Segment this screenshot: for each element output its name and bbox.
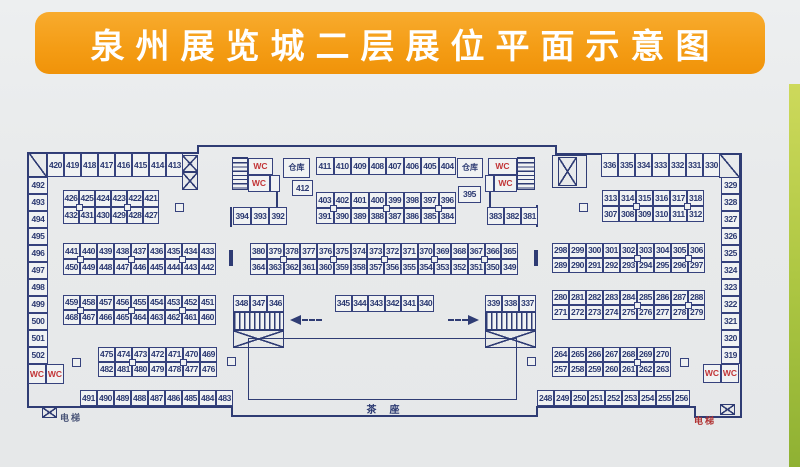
joint-pillar [179, 256, 186, 263]
booth-433: 433 [199, 243, 216, 259]
booth-326: 326 [721, 228, 740, 245]
booth-342: 342 [385, 295, 402, 312]
booth-377: 377 [300, 243, 317, 259]
wc-cell: WC [721, 364, 739, 383]
booth-337: 337 [519, 295, 536, 312]
booth-343: 343 [368, 295, 385, 312]
wall-segment [230, 207, 232, 227]
elevator-label-right: 电梯 [694, 414, 716, 427]
booth-381: 381 [521, 207, 538, 225]
shaft-x-icon [558, 157, 577, 186]
joint-pillar [383, 205, 390, 212]
booth-304: 304 [654, 243, 671, 258]
booth-460: 460 [199, 310, 216, 325]
booth-266: 266 [586, 347, 603, 362]
joint-pillar [128, 307, 135, 314]
pillar [579, 203, 588, 212]
arrow-right-dash [448, 319, 468, 321]
booth-490: 490 [97, 390, 114, 406]
booth-301: 301 [603, 243, 620, 258]
booth-489: 489 [114, 390, 131, 406]
joint-pillar [180, 359, 187, 366]
booth-401: 401 [351, 192, 369, 208]
booth-439: 439 [97, 243, 114, 259]
booth-409: 409 [351, 157, 369, 175]
booth-410: 410 [334, 157, 352, 175]
booth-346: 346 [267, 295, 284, 312]
booth-364: 364 [250, 259, 267, 275]
booth-339: 339 [485, 295, 502, 312]
booth-347: 347 [250, 295, 267, 312]
door-cell [485, 175, 494, 192]
booth-289: 289 [552, 258, 569, 273]
booth-329: 329 [721, 177, 740, 194]
booth-408: 408 [369, 157, 387, 175]
booth-488: 488 [131, 390, 148, 406]
booth-291: 291 [586, 258, 603, 273]
wc-cell: WC [248, 158, 273, 175]
stairs-icon [232, 157, 248, 190]
booth-258: 258 [569, 362, 586, 377]
booth-415: 415 [132, 153, 149, 177]
booth-282: 282 [586, 290, 603, 305]
booth-405: 405 [421, 157, 439, 175]
booth-492: 492 [28, 177, 48, 194]
booth-494: 494 [28, 211, 48, 228]
booth-267: 267 [603, 347, 620, 362]
booth-260: 260 [603, 362, 620, 377]
pillar [680, 358, 689, 367]
booth-486: 486 [165, 390, 182, 406]
booth-368: 368 [451, 243, 468, 259]
pillar [527, 357, 536, 366]
joint-pillar [128, 256, 135, 263]
booth-292: 292 [603, 258, 620, 273]
joint-pillar [431, 256, 438, 263]
tea-area [248, 338, 517, 400]
booth-420: 420 [47, 153, 64, 177]
booth-502: 502 [28, 347, 48, 364]
booth-277: 277 [654, 305, 671, 320]
booth-380: 380 [250, 243, 267, 259]
elevator-icon [42, 407, 57, 418]
booth-382: 382 [504, 207, 521, 225]
booth-448: 448 [97, 259, 114, 275]
booth-251: 251 [588, 390, 605, 406]
joint-pillar [381, 256, 388, 263]
booth-341: 341 [401, 295, 418, 312]
wall-segment [489, 192, 491, 208]
wc-cell: WC [248, 175, 270, 192]
booth-404: 404 [439, 157, 457, 175]
joint-pillar [280, 256, 287, 263]
wall-segment [276, 190, 278, 208]
arrow-right-icon [468, 315, 479, 325]
booth-249: 249 [554, 390, 571, 406]
joint-pillar [77, 307, 84, 314]
joint-pillar [330, 256, 337, 263]
booth-248: 248 [537, 390, 554, 406]
booth-319: 319 [721, 347, 740, 364]
booth-416: 416 [115, 153, 132, 177]
booth-321: 321 [721, 313, 740, 330]
shaft-x-icon [182, 172, 198, 190]
booth-412: 412 [292, 180, 313, 196]
booth-280: 280 [552, 290, 569, 305]
booth-255: 255 [656, 390, 673, 406]
booth-392: 392 [269, 207, 287, 225]
booth-463: 463 [148, 310, 165, 325]
floor-plan: 茶座 电梯 电梯 4204194184174164154144134924934… [0, 0, 800, 467]
booth-328: 328 [721, 194, 740, 211]
arrow-left-icon [290, 315, 301, 325]
stairs-icon [517, 157, 535, 190]
booth-442: 442 [199, 259, 216, 275]
arrow-left-dash [302, 319, 322, 321]
booth-421: 421 [143, 190, 159, 207]
wall-segment [740, 153, 742, 418]
booth-336: 336 [601, 153, 618, 177]
warehouse-cell: 仓库 [457, 158, 483, 178]
joint-pillar [684, 203, 691, 210]
joint-pillar [634, 359, 641, 366]
booth-355: 355 [401, 259, 418, 275]
booth-344: 344 [352, 295, 369, 312]
wc-cell: WC [703, 364, 721, 383]
booth-322: 322 [721, 296, 740, 313]
joint-pillar [634, 302, 641, 309]
booth-259: 259 [586, 362, 603, 377]
booth-300: 300 [586, 243, 603, 258]
wall-segment [197, 145, 557, 147]
wc-cell: WC [494, 175, 517, 192]
booth-252: 252 [605, 390, 622, 406]
booth-290: 290 [569, 258, 586, 273]
escalator-corner-icon [719, 153, 740, 178]
joint-pillar [685, 302, 692, 309]
booth-345: 345 [335, 295, 352, 312]
booth-295: 295 [654, 258, 671, 273]
booth-479: 479 [149, 362, 166, 377]
booth-313: 313 [602, 190, 619, 206]
escalator-corner-icon [28, 152, 47, 177]
booth-352: 352 [451, 259, 468, 275]
booth-484: 484 [199, 390, 216, 406]
joint-pillar [179, 307, 186, 314]
booth-417: 417 [98, 153, 115, 177]
booth-491: 491 [80, 390, 97, 406]
booth-445: 445 [148, 259, 165, 275]
door-bar [534, 250, 538, 266]
joint-pillar [481, 256, 488, 263]
shaft-x-icon [182, 155, 198, 172]
booth-265: 265 [569, 347, 586, 362]
booth-327: 327 [721, 211, 740, 228]
booth-332: 332 [669, 153, 686, 177]
booth-256: 256 [673, 390, 690, 406]
booth-334: 334 [635, 153, 652, 177]
booth-427: 427 [143, 207, 159, 224]
booth-413: 413 [166, 153, 183, 177]
booth-335: 335 [618, 153, 635, 177]
door-cell [270, 175, 280, 192]
booth-395: 395 [458, 186, 481, 203]
joint-pillar [129, 359, 136, 366]
booth-371: 371 [401, 243, 418, 259]
booth-393: 393 [251, 207, 269, 225]
wall-segment [27, 406, 233, 408]
booth-286: 286 [654, 290, 671, 305]
booth-264: 264 [552, 347, 569, 362]
pillar [72, 358, 81, 367]
booth-349: 349 [501, 259, 518, 275]
booth-419: 419 [64, 153, 81, 177]
booth-324: 324 [721, 262, 740, 279]
booth-398: 398 [404, 192, 422, 208]
booth-316: 316 [653, 190, 670, 206]
booth-472: 472 [149, 347, 166, 362]
booth-325: 325 [721, 245, 740, 262]
joint-pillar [330, 205, 337, 212]
booth-493: 493 [28, 194, 48, 211]
booth-430: 430 [95, 207, 111, 224]
booth-257: 257 [552, 362, 569, 377]
booth-411: 411 [316, 157, 334, 175]
booth-283: 283 [603, 290, 620, 305]
wc-cell: WC [28, 364, 46, 384]
booth-358: 358 [351, 259, 368, 275]
scan-edge-strip [789, 84, 800, 467]
booth-310: 310 [653, 206, 670, 222]
booth-323: 323 [721, 279, 740, 296]
booth-307: 307 [602, 206, 619, 222]
tea-area-label: 茶座 [318, 401, 448, 416]
booth-483: 483 [216, 390, 233, 406]
booth-500: 500 [28, 313, 48, 330]
escalator-treads-icon [233, 312, 284, 330]
booth-281: 281 [569, 290, 586, 305]
pillar [175, 203, 184, 212]
booth-466: 466 [97, 310, 114, 325]
booth-386: 386 [404, 208, 422, 224]
booth-501: 501 [28, 330, 48, 347]
booth-273: 273 [586, 305, 603, 320]
booth-365: 365 [501, 243, 518, 259]
booth-414: 414 [149, 153, 166, 177]
booth-497: 497 [28, 262, 48, 279]
booth-436: 436 [148, 243, 165, 259]
booth-498: 498 [28, 279, 48, 296]
booth-406: 406 [404, 157, 422, 175]
wall-segment [536, 406, 696, 408]
booth-407: 407 [386, 157, 404, 175]
joint-pillar [633, 203, 640, 210]
booth-418: 418 [81, 153, 98, 177]
screenshot-root: 泉州展览城二层展位平面示意图 [0, 0, 800, 467]
booth-299: 299 [569, 243, 586, 258]
elevator-icon [720, 404, 735, 415]
booth-487: 487 [148, 390, 165, 406]
booth-451: 451 [199, 295, 216, 310]
booth-424: 424 [95, 190, 111, 207]
booth-320: 320 [721, 330, 740, 347]
booth-374: 374 [351, 243, 368, 259]
booth-485: 485 [182, 390, 199, 406]
booth-499: 499 [28, 296, 48, 313]
escalator-treads-icon [485, 312, 536, 330]
booth-496: 496 [28, 245, 48, 262]
pillar [227, 357, 236, 366]
joint-pillar [77, 256, 84, 263]
booth-330: 330 [703, 153, 720, 177]
joint-pillar [634, 255, 641, 262]
booth-333: 333 [652, 153, 669, 177]
booth-394: 394 [233, 207, 251, 225]
booth-331: 331 [686, 153, 703, 177]
booth-348: 348 [233, 295, 250, 312]
booth-476: 476 [200, 362, 217, 377]
booth-340: 340 [418, 295, 435, 312]
booth-274: 274 [603, 305, 620, 320]
door-bar [229, 250, 233, 266]
booth-253: 253 [622, 390, 639, 406]
booth-475: 475 [98, 347, 115, 362]
booth-457: 457 [97, 295, 114, 310]
booth-454: 454 [148, 295, 165, 310]
booth-254: 254 [639, 390, 656, 406]
booth-469: 469 [200, 347, 217, 362]
joint-pillar [76, 204, 83, 211]
elevator-label-left: 电梯 [60, 411, 82, 424]
booth-250: 250 [571, 390, 588, 406]
booth-298: 298 [552, 243, 569, 258]
warehouse-cell: 仓库 [283, 158, 310, 178]
booth-361: 361 [300, 259, 317, 275]
booth-263: 263 [654, 362, 671, 377]
wc-cell: WC [46, 364, 64, 384]
wc-cell: WC [488, 158, 517, 175]
joint-pillar [685, 255, 692, 262]
booth-270: 270 [654, 347, 671, 362]
booth-271: 271 [552, 305, 569, 320]
booth-389: 389 [351, 208, 369, 224]
joint-pillar [124, 204, 131, 211]
booth-272: 272 [569, 305, 586, 320]
booth-383: 383 [487, 207, 504, 225]
joint-pillar [435, 205, 442, 212]
booth-482: 482 [98, 362, 115, 377]
booth-495: 495 [28, 228, 48, 245]
booth-338: 338 [502, 295, 519, 312]
